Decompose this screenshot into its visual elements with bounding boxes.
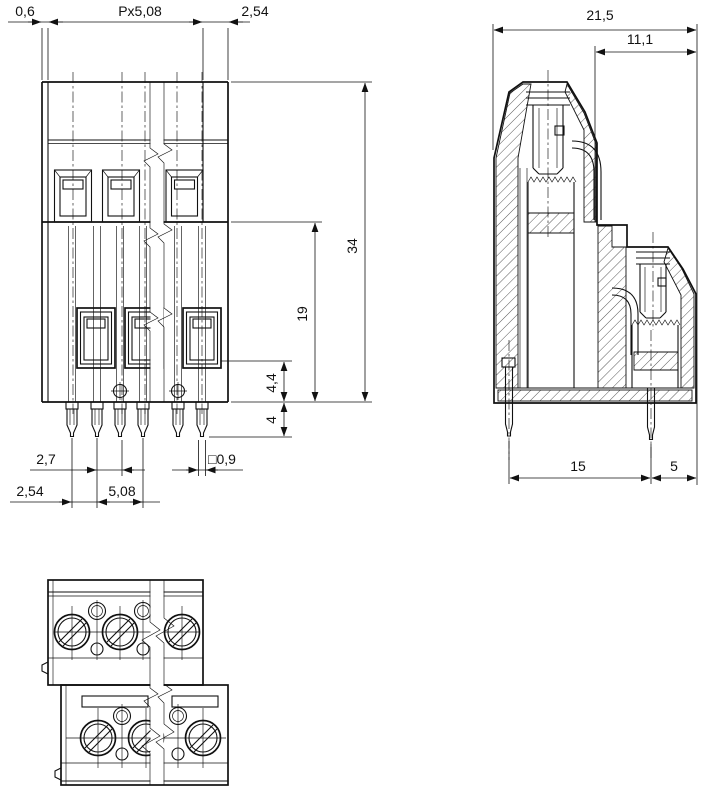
terminal-block-drawing: 0,6 Px5,08 2,54 34 19 4,4 4 2,7 2,54 5,0…	[0, 0, 703, 800]
front-right-dimensions: 34 19 4,4 4	[209, 82, 372, 437]
side-dimensions: 21,5 11,1 15 5	[493, 7, 697, 485]
top-lower-block	[55, 685, 228, 785]
dim-label-pin-square: □0,9	[208, 451, 236, 467]
dim-label-total-depth: 21,5	[586, 7, 613, 23]
solder-pins	[66, 402, 208, 437]
pin-3	[114, 402, 126, 437]
dim-label-clamp-height: 4,4	[263, 373, 279, 393]
technical-drawing-page: 0,6 Px5,08 2,54 34 19 4,4 4 2,7 2,54 5,0…	[0, 0, 703, 800]
dim-label-total-height: 34	[344, 238, 360, 254]
front-top-dimensions: 0,6 Px5,08 2,54	[8, 3, 269, 80]
top-break-gap	[151, 581, 164, 784]
side-pins	[502, 70, 655, 460]
lower-serration	[632, 320, 680, 325]
front-view: 0,6 Px5,08 2,54 34 19 4,4 4 2,7 2,54 5,0…	[8, 3, 372, 508]
dim-label-lower-height: 19	[294, 306, 310, 322]
top-upper-latch	[42, 662, 48, 674]
top-view	[42, 580, 228, 785]
dim-label-level-offset: 2,54	[241, 3, 268, 19]
front-clamp-screws	[111, 382, 187, 400]
lower-terminal-openings	[77, 308, 221, 368]
front-break-gap	[151, 83, 164, 401]
dim-label-pole-pitch: Px5,08	[118, 3, 162, 19]
pin-2	[91, 402, 103, 437]
top-upper-block	[42, 580, 203, 685]
side-view: 21,5 11,1 15 5	[493, 7, 697, 485]
dim-label-pin-to-edge: 5	[670, 458, 678, 474]
pin-5	[172, 402, 184, 437]
upper-serration	[528, 177, 576, 182]
dim-label-wall-thickness: 0,6	[15, 3, 35, 19]
pin-4	[137, 402, 149, 437]
dim-label-front-level-depth: 11,1	[627, 31, 653, 47]
top-upper-screws	[55, 603, 200, 656]
dim-label-pin-row-spacing: 15	[570, 458, 586, 474]
marking-slot-right	[172, 696, 218, 707]
top-lower-latch	[55, 768, 61, 780]
upper-terminal-openings	[55, 170, 204, 222]
dim-label-pin-length: 4	[263, 416, 279, 424]
upper-opening-3	[166, 170, 203, 222]
front-bottom-dimensions: 2,7 2,54 5,08 □0,9	[10, 438, 243, 508]
dim-label-pin-gap: 2,7	[36, 451, 56, 467]
dim-label-pin-offset: 2,54	[16, 483, 43, 499]
dim-label-pin-pitch: 5,08	[108, 483, 135, 499]
pin-1	[66, 402, 78, 437]
marking-slot-left	[82, 696, 148, 707]
upper-opening-2	[103, 170, 140, 222]
front-internal-edges	[69, 226, 206, 402]
front-body	[42, 82, 228, 402]
lower-opening-1	[77, 308, 115, 368]
